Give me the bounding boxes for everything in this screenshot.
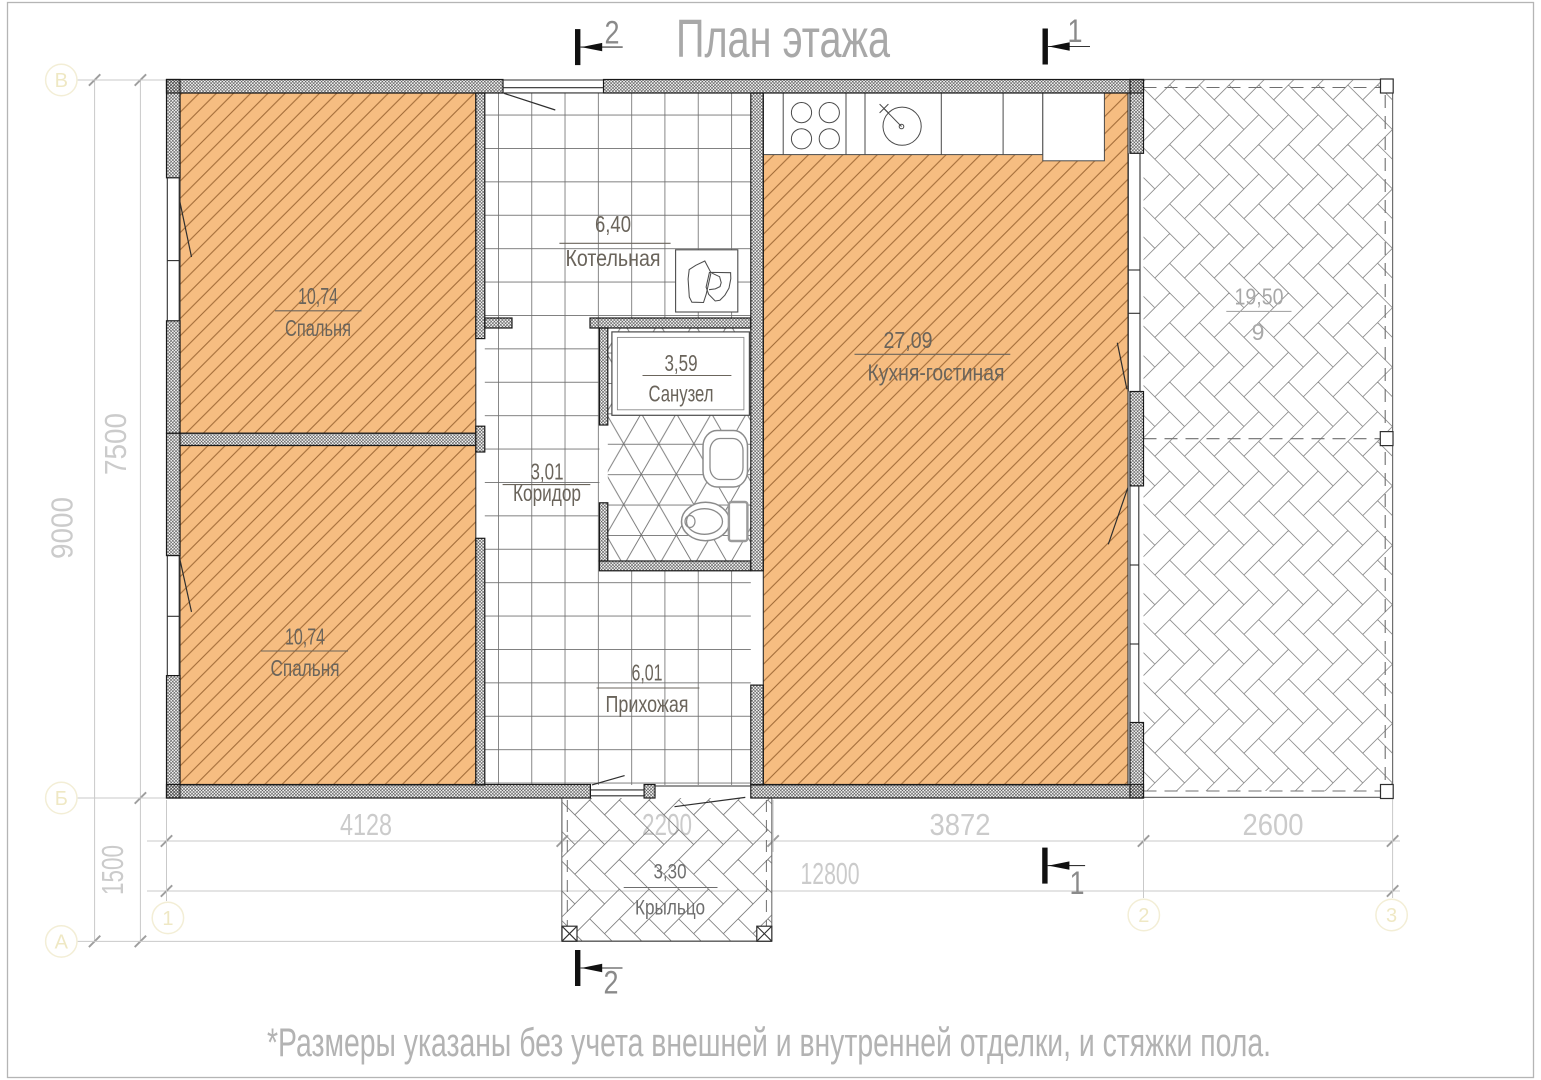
svg-text:6,01: 6,01 [632, 660, 663, 686]
svg-text:Спальня: Спальня [271, 655, 340, 681]
svg-text:9: 9 [1252, 319, 1265, 345]
svg-text:3: 3 [1386, 905, 1397, 927]
svg-text:1: 1 [162, 908, 173, 930]
svg-text:1500: 1500 [95, 845, 130, 895]
svg-text:9000: 9000 [45, 497, 80, 559]
svg-text:2: 2 [604, 965, 619, 1001]
svg-text:А: А [55, 931, 69, 953]
svg-text:Коридор: Коридор [513, 480, 581, 506]
svg-text:7500: 7500 [98, 413, 133, 475]
svg-text:1: 1 [1070, 865, 1085, 901]
svg-text:2: 2 [1138, 905, 1149, 927]
svg-text:Крыльцо: Крыльцо [635, 897, 705, 920]
svg-text:Прихожая: Прихожая [606, 691, 689, 717]
svg-text:3872: 3872 [930, 807, 991, 842]
svg-text:10,74: 10,74 [298, 283, 338, 309]
svg-text:2: 2 [605, 15, 620, 51]
svg-text:Санузел: Санузел [649, 380, 714, 406]
svg-text:12800: 12800 [801, 856, 860, 891]
svg-text:*Размеры указаны без учета вне: *Размеры указаны без учета внешней и вну… [267, 1021, 1271, 1065]
svg-text:19,50: 19,50 [1235, 284, 1284, 310]
svg-text:27,09: 27,09 [884, 327, 933, 353]
svg-text:4128: 4128 [340, 807, 392, 842]
svg-text:1: 1 [1068, 13, 1083, 49]
svg-text:Спальня: Спальня [285, 315, 351, 341]
svg-text:Б: Б [55, 788, 68, 810]
svg-text:В: В [55, 70, 68, 92]
svg-text:Котельная: Котельная [566, 245, 661, 271]
svg-text:10,74: 10,74 [285, 623, 325, 649]
svg-text:Кухня-гостиная: Кухня-гостиная [868, 360, 1005, 386]
svg-text:2600: 2600 [1243, 807, 1304, 842]
svg-text:3,59: 3,59 [665, 350, 698, 376]
svg-text:План этажа: План этажа [676, 9, 891, 69]
svg-text:3,30: 3,30 [654, 861, 687, 884]
svg-text:6,40: 6,40 [595, 211, 631, 237]
